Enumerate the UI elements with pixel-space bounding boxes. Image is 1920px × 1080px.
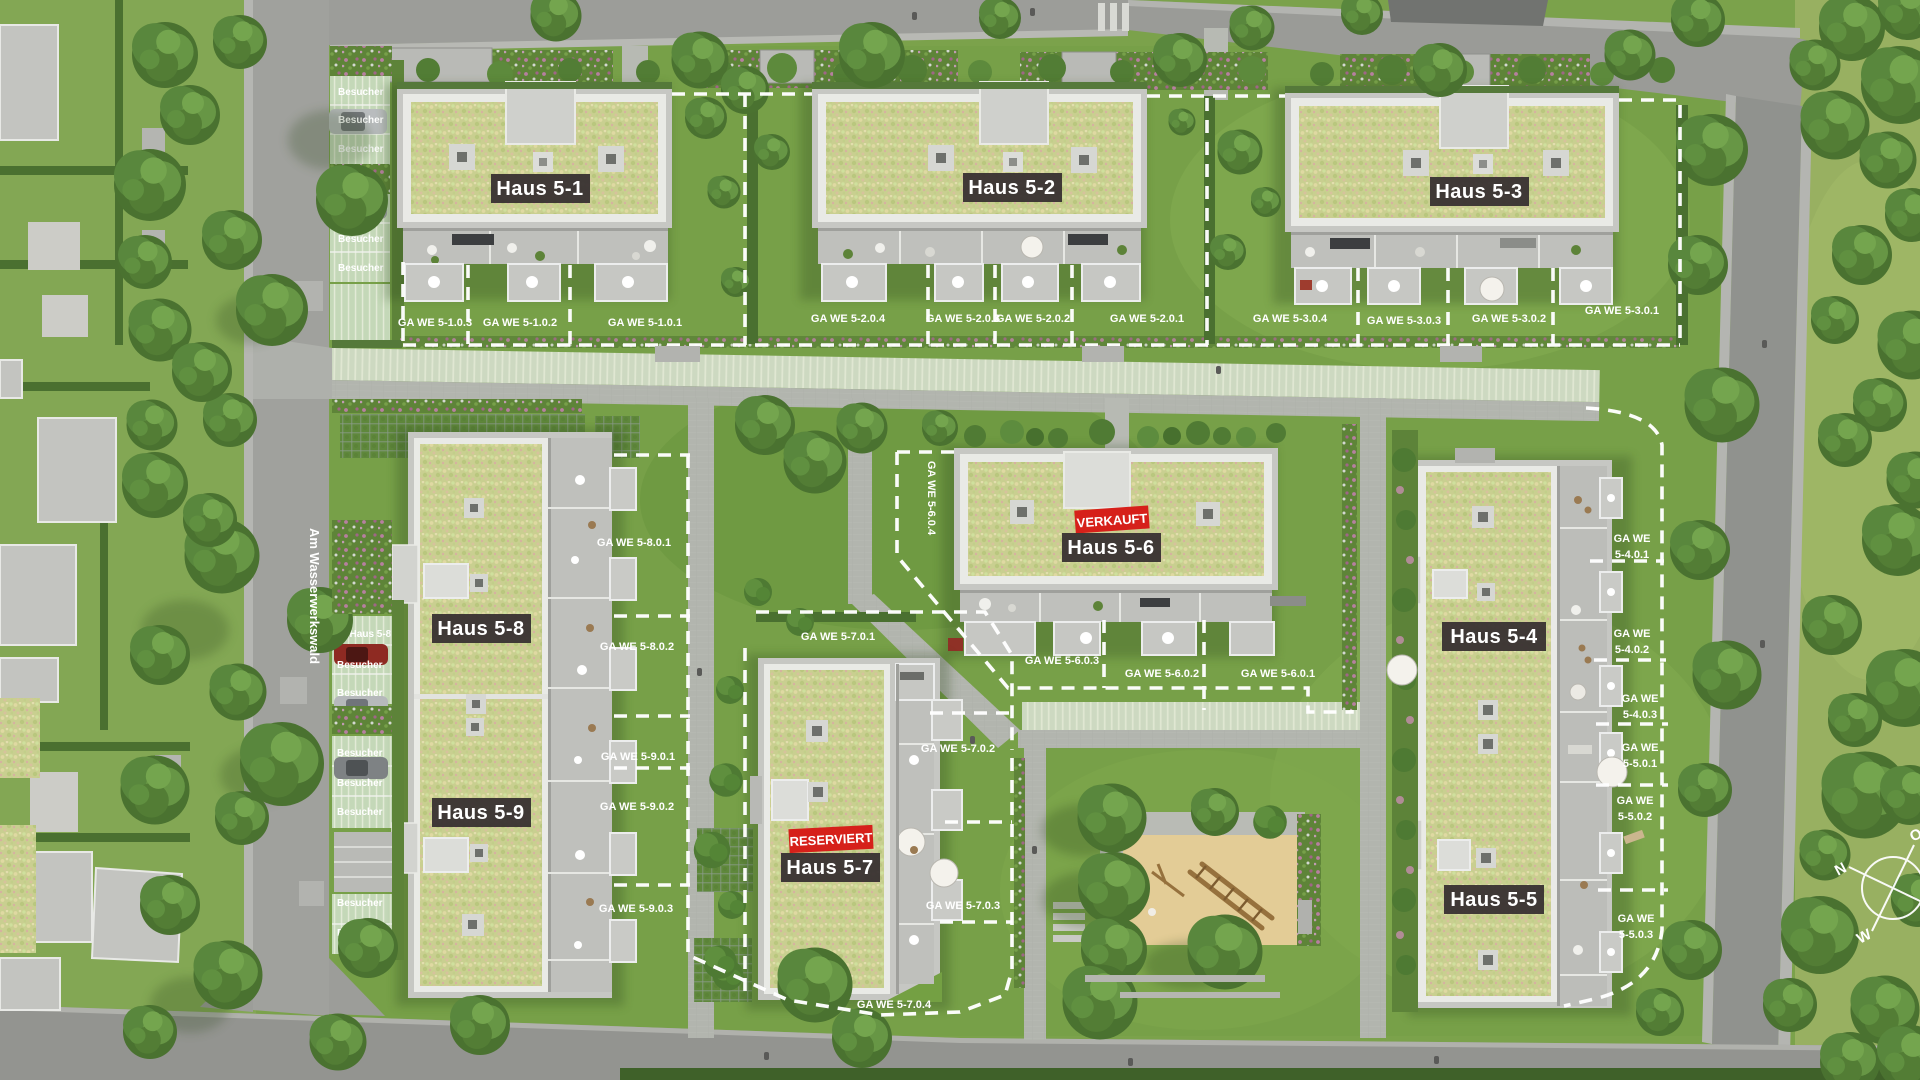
svg-text:GA WE 5-1.0.1: GA WE 5-1.0.1 (608, 317, 682, 329)
svg-text:Haus 5-2: Haus 5-2 (968, 177, 1055, 199)
svg-text:Besucher: Besucher (337, 898, 383, 909)
svg-text:Besucher: Besucher (337, 778, 383, 789)
svg-text:GA WE 5-3.0.4: GA WE 5-3.0.4 (1253, 313, 1328, 325)
svg-text:GA WE 5-3.0.3: GA WE 5-3.0.3 (1367, 315, 1441, 327)
svg-text:GA WE 5-2.0.1: GA WE 5-2.0.1 (1110, 313, 1184, 325)
svg-text:GA WE 5-2.0.2: GA WE 5-2.0.2 (996, 313, 1070, 325)
svg-text:Besucher: Besucher (338, 234, 384, 245)
svg-text:GA WE 5-9.0.1: GA WE 5-9.0.1 (601, 751, 675, 763)
svg-text:Haus 5-7: Haus 5-7 (786, 857, 873, 879)
svg-text:Besucher: Besucher (338, 263, 384, 274)
svg-text:GA WE 5-2.0.3: GA WE 5-2.0.3 (926, 313, 1000, 325)
svg-text:GA WE: GA WE (1622, 693, 1659, 705)
svg-text:GA WE 5-6.0.2: GA WE 5-6.0.2 (1125, 668, 1199, 680)
svg-text:Besucher: Besucher (338, 87, 384, 98)
svg-text:Haus 5-1: Haus 5-1 (496, 178, 583, 200)
svg-text:GA WE 5-1.0.3: GA WE 5-1.0.3 (398, 317, 472, 329)
svg-text:GA WE 5-3.0.1: GA WE 5-3.0.1 (1585, 305, 1659, 317)
svg-text:GA WE: GA WE (1614, 628, 1651, 640)
svg-text:5-4.0.3: 5-4.0.3 (1623, 709, 1657, 721)
svg-text:GA WE 5-3.0.2: GA WE 5-3.0.2 (1472, 313, 1546, 325)
svg-text:GA WE 5-6.0.3: GA WE 5-6.0.3 (1025, 655, 1099, 667)
svg-text:GA WE: GA WE (1622, 742, 1659, 754)
svg-text:GA WE 5-8.0.2: GA WE 5-8.0.2 (600, 641, 674, 653)
svg-text:Besucher: Besucher (337, 688, 383, 699)
svg-text:GA WE 5-9.0.2: GA WE 5-9.0.2 (600, 801, 674, 813)
svg-text:GA WE 5-6.0.4: GA WE 5-6.0.4 (925, 461, 937, 536)
svg-text:GA WE: GA WE (1618, 913, 1655, 925)
svg-text:5-5.0.1: 5-5.0.1 (1623, 758, 1657, 770)
svg-text:Haus 5-4: Haus 5-4 (1450, 626, 1538, 648)
svg-text:GA WE 5-7.0.4: GA WE 5-7.0.4 (857, 999, 932, 1011)
svg-text:GA WE 5-6.0.1: GA WE 5-6.0.1 (1241, 668, 1315, 680)
svg-text:5-4.0.1: 5-4.0.1 (1615, 549, 1649, 561)
svg-text:Besucher: Besucher (337, 748, 383, 759)
svg-text:GA WE 5-7.0.2: GA WE 5-7.0.2 (921, 743, 995, 755)
svg-text:5-5.0.2: 5-5.0.2 (1618, 811, 1652, 823)
svg-text:GA WE 5-7.0.1: GA WE 5-7.0.1 (801, 631, 875, 643)
svg-text:GA WE 5-1.0.2: GA WE 5-1.0.2 (483, 317, 557, 329)
svg-text:Besucher: Besucher (337, 807, 383, 818)
svg-text:GA WE: GA WE (1614, 533, 1651, 545)
svg-text:Am Wasserwerkswald: Am Wasserwerkswald (307, 528, 322, 664)
svg-text:Haus 5-6: Haus 5-6 (1067, 537, 1154, 559)
svg-text:Haus 5-9: Haus 5-9 (437, 802, 524, 824)
svg-text:GA WE: GA WE (1617, 795, 1654, 807)
svg-text:GA WE 5-8.0.1: GA WE 5-8.0.1 (597, 537, 671, 549)
svg-text:5-5.0.3: 5-5.0.3 (1619, 929, 1653, 941)
svg-text:Besucher: Besucher (337, 660, 383, 671)
svg-text:5-4.0.2: 5-4.0.2 (1615, 644, 1649, 656)
svg-text:GA WE 5-7.0.3: GA WE 5-7.0.3 (926, 900, 1000, 912)
svg-text:GA WE 5-9.0.3: GA WE 5-9.0.3 (599, 903, 673, 915)
svg-text:Haus 5-8: Haus 5-8 (437, 618, 524, 640)
svg-text:Haus 5-3: Haus 5-3 (1435, 181, 1522, 203)
svg-text:Haus 5-5: Haus 5-5 (1450, 889, 1537, 911)
svg-text:GA WE 5-2.0.4: GA WE 5-2.0.4 (811, 313, 886, 325)
